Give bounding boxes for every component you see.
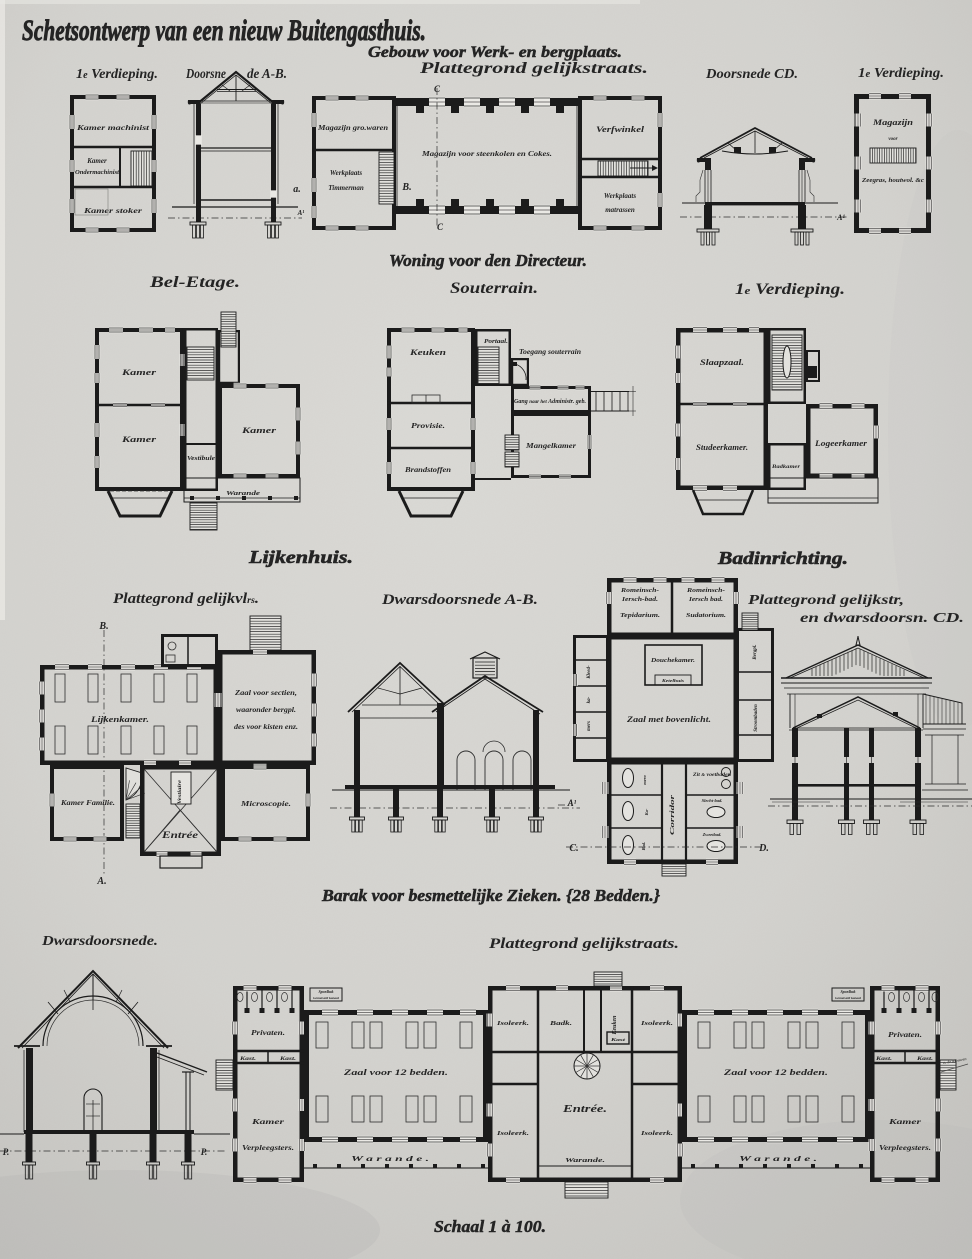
svg-text:Kamer: Kamer [86, 157, 107, 165]
svg-text:Magazijn gro.waren: Magazijn gro.waren [317, 124, 388, 132]
svg-text:Microscopie.: Microscopie. [240, 799, 291, 808]
svg-text:Kast.: Kast. [915, 1057, 933, 1062]
svg-text:Kleed-: Kleed- [587, 665, 592, 680]
svg-text:Slecht-bad.: Slecht-bad. [702, 798, 723, 803]
svg-text:ka-: ka- [587, 696, 592, 703]
svg-text:Gemetseld kanaal: Gemetseld kanaal [835, 996, 861, 1000]
svg-text:Gemetseld kanaal: Gemetseld kanaal [313, 996, 339, 1000]
svg-text:Romeinsch-: Romeinsch- [620, 587, 659, 594]
svg-text:A¹: A¹ [297, 209, 305, 217]
svg-text:Toegang souterrain: Toegang souterrain [519, 348, 581, 356]
svg-text:Verfwinkel: Verfwinkel [596, 125, 645, 134]
svg-text:Badinrichting.: Badinrichting. [717, 548, 848, 568]
svg-text:Isoleerk.: Isoleerk. [640, 1020, 674, 1027]
svg-text:Woning voor den Directeur.: Woning voor den Directeur. [389, 251, 587, 270]
svg-text:Isoleerk.: Isoleerk. [640, 1130, 674, 1137]
svg-text:Dwarsdoorsnede.: Dwarsdoorsnede. [41, 934, 158, 949]
svg-text:Schetsontwerp van een nieuw Bu: Schetsontwerp van een nieuw Buitengasthu… [22, 14, 426, 47]
svg-text:Romeinsch-: Romeinsch- [686, 587, 725, 594]
svg-text:Lijkenkamer.: Lijkenkamer. [90, 714, 149, 724]
svg-text:Mangelkamer: Mangelkamer [525, 442, 577, 450]
svg-text:Plattegrond gelijkstr,: Plattegrond gelijkstr, [748, 593, 904, 608]
svg-text:Keuken: Keuken [409, 348, 447, 357]
svg-text:W a r a n d e .: W a r a n d e . [351, 1154, 429, 1163]
svg-text:Zaal met bovenlicht.: Zaal met bovenlicht. [626, 715, 711, 724]
svg-text:Zaal voor sectien,: Zaal voor sectien, [234, 689, 298, 697]
svg-text:C: C [437, 222, 444, 232]
svg-text:Gang naar het Administr. geb.: Gang naar het Administr. geb. [514, 399, 586, 405]
svg-text:A.: A. [96, 876, 106, 887]
svg-text:Kamer: Kamer [240, 426, 277, 435]
svg-text:1e Verdieping.: 1e Verdieping. [735, 281, 845, 298]
svg-text:Doorsnede CD.: Doorsnede CD. [705, 67, 798, 82]
svg-text:Ketelhuis: Ketelhuis [661, 678, 685, 683]
svg-text:Privaten.: Privaten. [251, 1029, 285, 1037]
svg-text:Werkplaats: Werkplaats [604, 192, 636, 200]
svg-text:Entrée.: Entrée. [562, 1104, 607, 1115]
svg-text:Kast: Kast [609, 1037, 626, 1042]
svg-text:Souterrain.: Souterrain. [450, 280, 538, 297]
svg-text:Stroombaden: Stroombaden [754, 704, 759, 732]
svg-text:en dwarsdoorsn. CD.: en dwarsdoorsn. CD. [800, 611, 964, 626]
svg-text:Vestibule: Vestibule [187, 456, 215, 462]
svg-text:C: C [434, 84, 441, 94]
svg-text:Spoelbak: Spoelbak [318, 989, 333, 994]
svg-text:matrassen: matrassen [605, 206, 635, 214]
svg-text:Plattegrond gelijkvlrs.: Plattegrond gelijkvlrs. [113, 591, 259, 607]
svg-text:Studeerkamer.: Studeerkamer. [696, 443, 748, 452]
svg-text:A¹: A¹ [567, 798, 577, 808]
svg-text:Slaapzaal.: Slaapzaal. [700, 358, 744, 367]
svg-text:Lijkenhuis.: Lijkenhuis. [248, 547, 353, 567]
svg-text:mers: mers [587, 721, 592, 731]
svg-text:Portaal.: Portaal. [484, 339, 509, 345]
svg-text:1e Verdieping.: 1e Verdieping. [76, 67, 158, 82]
svg-text:1e Verdieping.: 1e Verdieping. [858, 66, 944, 81]
svg-text:Provisie.: Provisie. [411, 421, 445, 430]
svg-text:D.: D. [758, 843, 769, 854]
svg-text:Kamer: Kamer [250, 1117, 284, 1126]
svg-text:Barak voor besmettelijke Zieke: Barak voor besmettelijke Zieken. {28 Bed… [321, 886, 660, 905]
svg-text:Zeegras, houtwol. &c: Zeegras, houtwol. &c [861, 177, 924, 184]
svg-text:Spoelbak: Spoelbak [840, 989, 855, 994]
svg-text:Kamer: Kamer [120, 435, 157, 444]
svg-text:Douchekamer.: Douchekamer. [650, 658, 696, 664]
svg-text:Bergpl.: Bergpl. [753, 644, 758, 660]
svg-text:Iersch-bad.: Iersch-bad. [621, 596, 659, 603]
svg-text:Zit & voetbaden: Zit & voetbaden [692, 772, 731, 778]
svg-text:Zaal voor 12 bedden.: Zaal voor 12 bedden. [343, 1067, 448, 1077]
svg-text:Badk.: Badk. [549, 1020, 573, 1027]
svg-text:Isoleerk.: Isoleerk. [496, 1130, 530, 1137]
svg-text:de A-B.: de A-B. [247, 67, 287, 82]
svg-text:C.: C. [569, 843, 578, 854]
svg-text:waaronder bergpl.: waaronder bergpl. [236, 706, 296, 714]
svg-text:P.: P. [3, 1147, 10, 1157]
svg-text:Verpleegsters.: Verpleegsters. [242, 1143, 294, 1152]
svg-text:Schaal 1 à 100.: Schaal 1 à 100. [434, 1217, 546, 1236]
svg-text:mero: mero [642, 775, 647, 785]
svg-text:Zaal voor 12 bedden.: Zaal voor 12 bedden. [723, 1067, 828, 1077]
svg-text:Entrée: Entrée [161, 830, 198, 840]
svg-text:Tepidarium.: Tepidarium. [620, 612, 660, 619]
svg-text:Kast.: Kast. [278, 1057, 296, 1062]
svg-text:voor: voor [888, 137, 897, 142]
svg-text:P.: P. [201, 1147, 208, 1157]
svg-text:Privaten.: Privaten. [888, 1031, 922, 1039]
svg-text:Ondermachinist: Ondermachinist [75, 169, 119, 176]
svg-text:Plattegrond gelijkstraats.: Plattegrond gelijkstraats. [489, 936, 679, 952]
svg-text:Iersch bad.: Iersch bad. [688, 596, 724, 603]
svg-text:Ka-: Ka- [644, 808, 649, 816]
svg-text:Isoleerk.: Isoleerk. [496, 1020, 530, 1027]
svg-text:Badkamer: Badkamer [771, 464, 801, 470]
svg-text:B.: B. [98, 621, 108, 632]
svg-text:Kamer Familie.: Kamer Familie. [60, 799, 115, 807]
svg-text:Kast.: Kast. [874, 1057, 892, 1062]
svg-text:a.: a. [293, 184, 301, 195]
svg-text:Kast.: Kast. [238, 1057, 256, 1062]
svg-text:Kamer machinist: Kamer machinist [76, 123, 151, 132]
svg-text:Bel-Etage.: Bel-Etage. [149, 274, 240, 291]
svg-text:Kamer: Kamer [120, 368, 157, 377]
svg-text:Doorsne: Doorsne [185, 67, 226, 82]
svg-text:Sudatorium.: Sudatorium. [686, 612, 726, 619]
svg-text:Corridor: Corridor [670, 794, 676, 835]
svg-text:des voor kisten enz.: des voor kisten enz. [234, 723, 298, 731]
svg-text:Vestiaire: Vestiaire [178, 779, 183, 804]
svg-text:Zweetbad.: Zweetbad. [702, 832, 722, 837]
svg-text:Verpleegsters.: Verpleegsters. [879, 1143, 931, 1152]
svg-text:Bad.: Bad. [641, 842, 646, 852]
svg-text:Kamer stoker: Kamer stoker [83, 206, 142, 215]
svg-text:Plattegrond gelijkstraats.: Plattegrond gelijkstraats. [419, 60, 648, 77]
svg-text:Warande: Warande [226, 490, 260, 497]
svg-text:Brandstoffen: Brandstoffen [404, 465, 451, 474]
svg-text:Warande.: Warande. [565, 1158, 606, 1164]
svg-text:Werkplaats: Werkplaats [330, 169, 362, 177]
svg-text:B.: B. [401, 182, 411, 193]
svg-text:Dwarsdoorsnede A-B.: Dwarsdoorsnede A-B. [381, 592, 538, 608]
svg-text:Logeerkamer: Logeerkamer [814, 439, 868, 448]
svg-text:Magazijn: Magazijn [872, 118, 914, 127]
svg-text:W a r a n d e .: W a r a n d e . [739, 1154, 817, 1163]
svg-text:Timmerman: Timmerman [328, 184, 364, 192]
svg-text:A¹: A¹ [836, 213, 845, 222]
svg-text:Gebouw voor Werk- en bergplaat: Gebouw voor Werk- en bergplaats. [368, 44, 622, 61]
svg-text:Kamer: Kamer [887, 1117, 921, 1126]
svg-text:Magazijn voor steenkolen en Co: Magazijn voor steenkolen en Cokes. [421, 149, 552, 158]
